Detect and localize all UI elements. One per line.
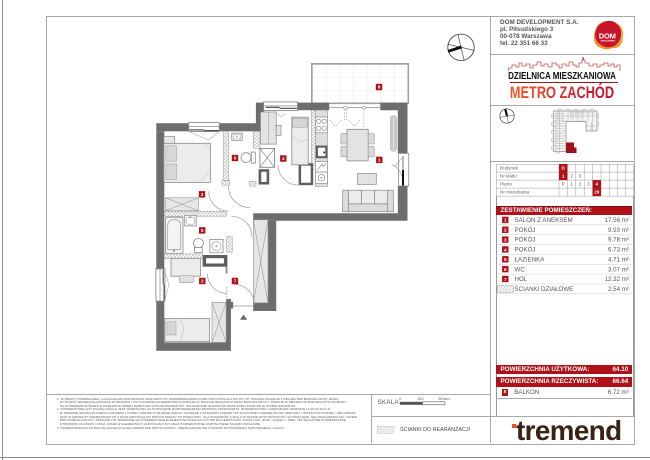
svg-text:8: 8 [378, 85, 381, 90]
svg-text:6: 6 [234, 156, 237, 161]
svg-text:1: 1 [378, 158, 381, 163]
svg-text:3: 3 [201, 192, 204, 197]
svg-text:7: 7 [234, 279, 237, 284]
svg-text:2: 2 [201, 279, 204, 284]
svg-text:5: 5 [201, 228, 204, 233]
svg-text:4: 4 [282, 156, 285, 161]
